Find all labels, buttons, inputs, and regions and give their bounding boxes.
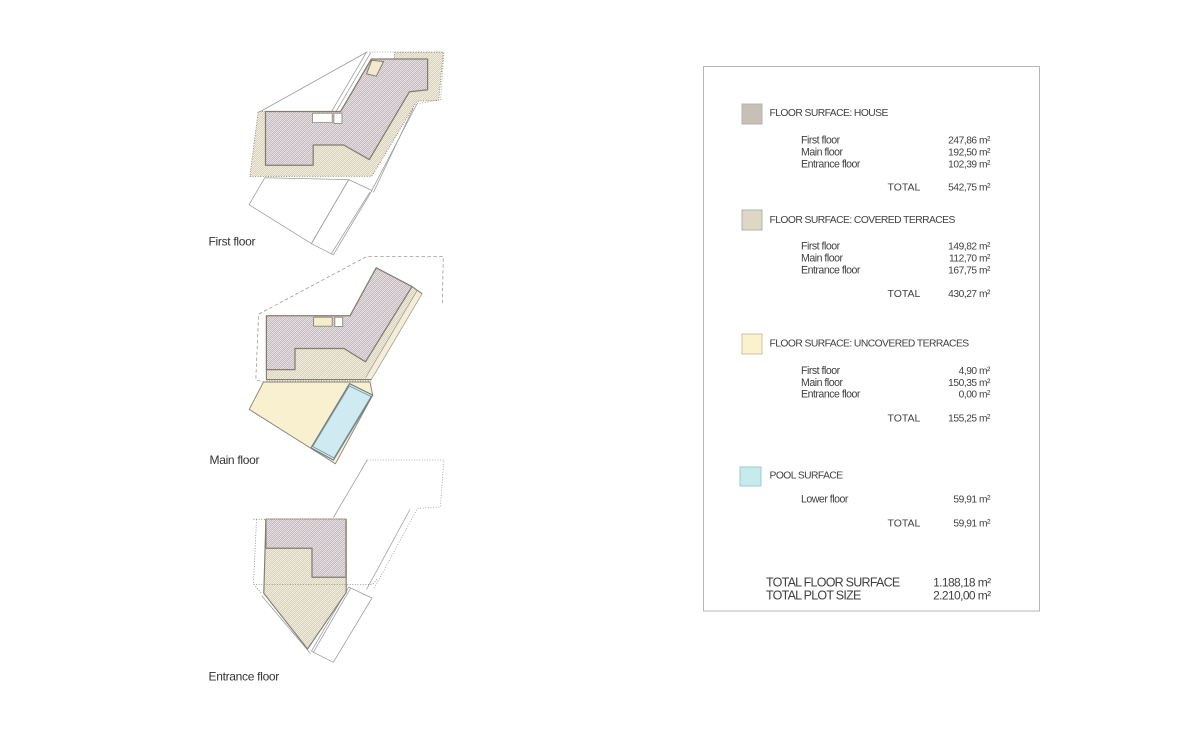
svg-text:4,90 m²: 4,90 m² xyxy=(959,366,991,377)
svg-text:Main floor: Main floor xyxy=(801,253,843,265)
svg-text:TOTAL FLOOR SURFACE: TOTAL FLOOR SURFACE xyxy=(766,576,900,590)
svg-text:TOTAL PLOT SIZE: TOTAL PLOT SIZE xyxy=(766,589,861,603)
svg-text:Main floor: Main floor xyxy=(801,147,843,159)
svg-text:247,86 m²: 247,86 m² xyxy=(948,136,991,147)
svg-text:Entrance floor: Entrance floor xyxy=(801,159,861,171)
svg-text:FLOOR SURFACE: COVERED TERRACE: FLOOR SURFACE: COVERED TERRACES xyxy=(770,215,956,226)
svg-text:First floor: First floor xyxy=(801,135,841,147)
svg-text:430,27 m²: 430,27 m² xyxy=(948,289,991,300)
svg-text:Main floor: Main floor xyxy=(801,377,843,389)
svg-text:1.188,18 m²: 1.188,18 m² xyxy=(933,576,991,590)
svg-text:TOTAL: TOTAL xyxy=(888,182,921,194)
svg-text:TOTAL: TOTAL xyxy=(888,412,921,424)
svg-text:TOTAL: TOTAL xyxy=(888,518,921,530)
svg-text:First floor: First floor xyxy=(801,365,841,377)
svg-text:59,91 m²: 59,91 m² xyxy=(953,495,991,506)
svg-text:Entrance floor: Entrance floor xyxy=(801,389,861,401)
svg-text:FLOOR SURFACE: UNCOVERED TERRA: FLOOR SURFACE: UNCOVERED TERRACES xyxy=(770,339,970,350)
svg-text:167,75 m²: 167,75 m² xyxy=(948,266,991,277)
svg-text:Entrance floor: Entrance floor xyxy=(209,670,280,684)
svg-text:150,35 m²: 150,35 m² xyxy=(948,378,991,389)
svg-text:2.210,00 m²: 2.210,00 m² xyxy=(933,589,991,603)
svg-text:Main floor: Main floor xyxy=(210,453,260,467)
svg-text:155,25 m²: 155,25 m² xyxy=(948,413,991,424)
svg-text:59,91 m²: 59,91 m² xyxy=(953,519,991,530)
svg-text:192,50 m²: 192,50 m² xyxy=(948,148,991,159)
svg-text:Lower floor: Lower floor xyxy=(801,494,849,506)
svg-text:112,70 m²: 112,70 m² xyxy=(949,254,991,265)
svg-text:149,82 m²: 149,82 m² xyxy=(948,242,991,253)
svg-text:TOTAL: TOTAL xyxy=(888,288,921,300)
svg-text:FLOOR SURFACE: HOUSE: FLOOR SURFACE: HOUSE xyxy=(770,108,889,119)
svg-text:542,75 m²: 542,75 m² xyxy=(948,183,991,194)
svg-text:POOL SURFACE: POOL SURFACE xyxy=(770,471,844,482)
svg-text:First floor: First floor xyxy=(801,241,841,253)
svg-text:First floor: First floor xyxy=(209,235,256,249)
svg-text:0,00 m²: 0,00 m² xyxy=(959,390,991,401)
svg-text:Entrance floor: Entrance floor xyxy=(801,265,861,277)
svg-text:102,39 m²: 102,39 m² xyxy=(948,160,991,171)
